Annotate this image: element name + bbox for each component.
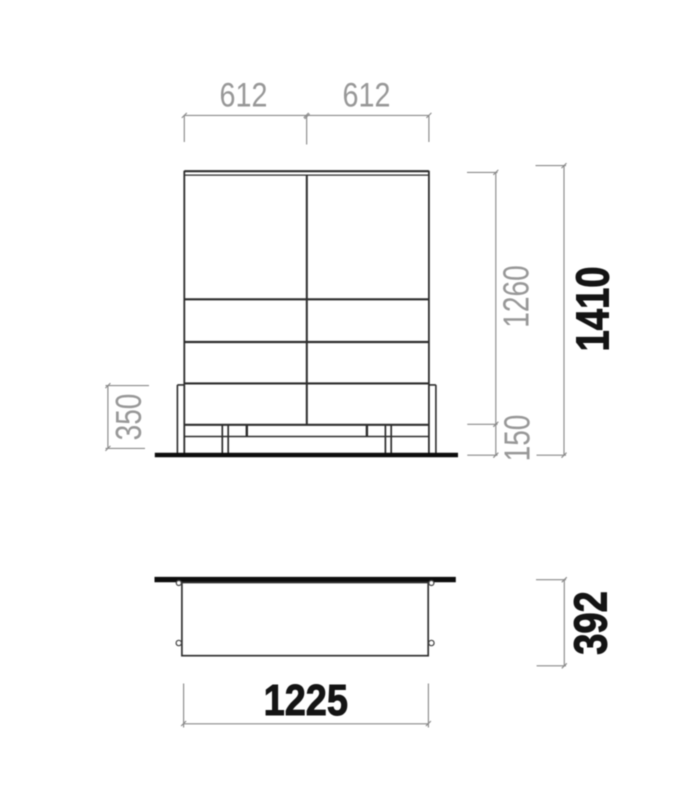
svg-text:612: 612 <box>220 75 268 114</box>
svg-text:350: 350 <box>109 394 149 441</box>
svg-text:612: 612 <box>343 75 391 114</box>
svg-text:1410: 1410 <box>567 267 618 352</box>
svg-text:392: 392 <box>566 591 617 655</box>
svg-text:1225: 1225 <box>264 676 348 725</box>
svg-text:150: 150 <box>497 415 537 462</box>
svg-text:1260: 1260 <box>496 265 536 327</box>
